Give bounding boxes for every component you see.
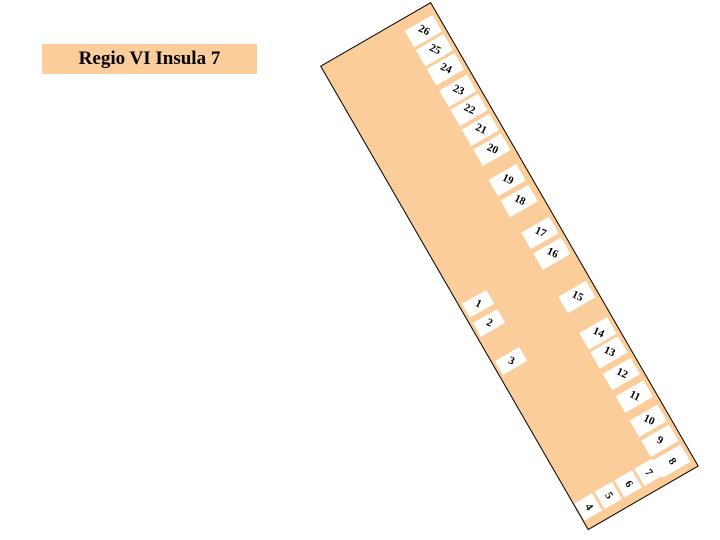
entrance-number: 12	[614, 367, 629, 382]
entrance-number: 26	[416, 24, 431, 39]
entrance-number: 15	[570, 290, 585, 305]
entrance-number: 2	[484, 317, 494, 329]
title-box: Regio VI Insula 7	[42, 44, 257, 74]
entrance-number: 16	[545, 246, 560, 261]
entrance-number: 9	[655, 435, 665, 447]
entrance-number: 25	[427, 43, 442, 58]
entrance-number: 21	[473, 123, 488, 138]
entrance-number: 24	[438, 62, 453, 77]
entrance-number: 7	[642, 467, 654, 478]
entrance-number: 14	[591, 326, 606, 341]
entrance-number: 20	[485, 142, 500, 157]
page-title: Regio VI Insula 7	[79, 48, 221, 70]
entrance-15[interactable]: 15	[558, 281, 595, 313]
entrance-number: 23	[451, 84, 466, 99]
entrance-number: 19	[500, 173, 515, 188]
entrance-number: 4	[582, 501, 594, 512]
entrance-number: 5	[602, 490, 614, 501]
entrance-number: 13	[602, 345, 617, 360]
entrance-number: 6	[622, 478, 634, 489]
entrance-number: 8	[666, 456, 678, 467]
entrance-11[interactable]: 11	[616, 380, 653, 412]
entrance-number: 3	[506, 355, 516, 367]
entrance-number: 1	[473, 298, 483, 310]
page: Regio VI Insula 7 1234567891011121314151…	[0, 0, 720, 540]
entrance-number: 10	[641, 414, 656, 429]
entrance-3[interactable]: 3	[495, 347, 527, 375]
entrance-number: 11	[627, 389, 641, 403]
entrance-number: 18	[512, 194, 527, 209]
entrance-number: 22	[462, 103, 477, 118]
insula-block: 1234567891011121314151617181920212223242…	[320, 2, 699, 530]
entrance-number: 17	[533, 226, 548, 241]
